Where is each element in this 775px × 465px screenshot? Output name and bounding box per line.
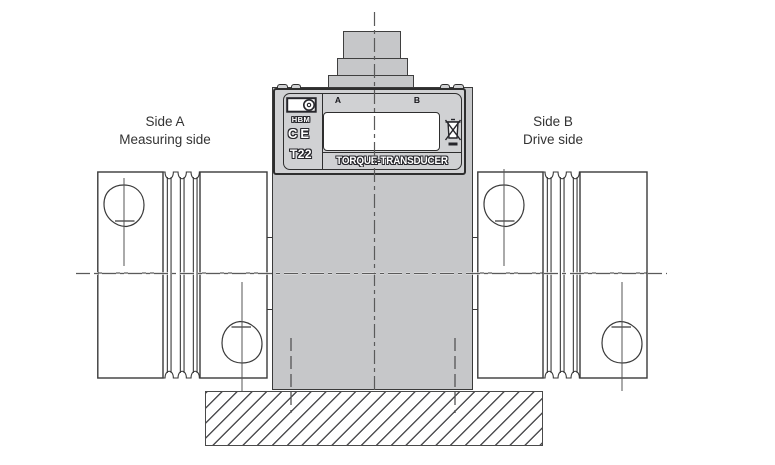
ce-mark: CE [283,126,317,141]
caption-side-b: Side B Drive side [473,113,633,148]
connector-step-top [343,31,401,59]
label-strip-line [322,152,461,153]
model-text: T22 [284,147,318,161]
brand-text: HBM [284,115,318,124]
connector-step-middle [337,58,408,76]
caption-side-a-line1: Side A [85,113,245,131]
coupling-side-b [477,160,648,393]
weee-crossed-bin-icon [444,114,462,148]
port-a-label: A [330,95,346,105]
caption-side-a-line2: Measuring side [85,131,245,149]
product-name: TORQUE-TRANSDUCER [329,155,455,167]
caption-side-a: Side A Measuring side [85,113,245,148]
coupling-side-a [97,160,268,393]
port-b-label: B [409,95,425,105]
hbm-logo-icon [286,97,318,114]
foundation-hatched-base [205,391,543,446]
caption-side-b-line1: Side B [473,113,633,131]
nameplate [323,112,440,152]
torque-transducer-mounting-diagram: HBM CE T22 A B TORQUE-TRANSDUCER [0,0,775,465]
caption-side-b-line2: Drive side [473,131,633,149]
